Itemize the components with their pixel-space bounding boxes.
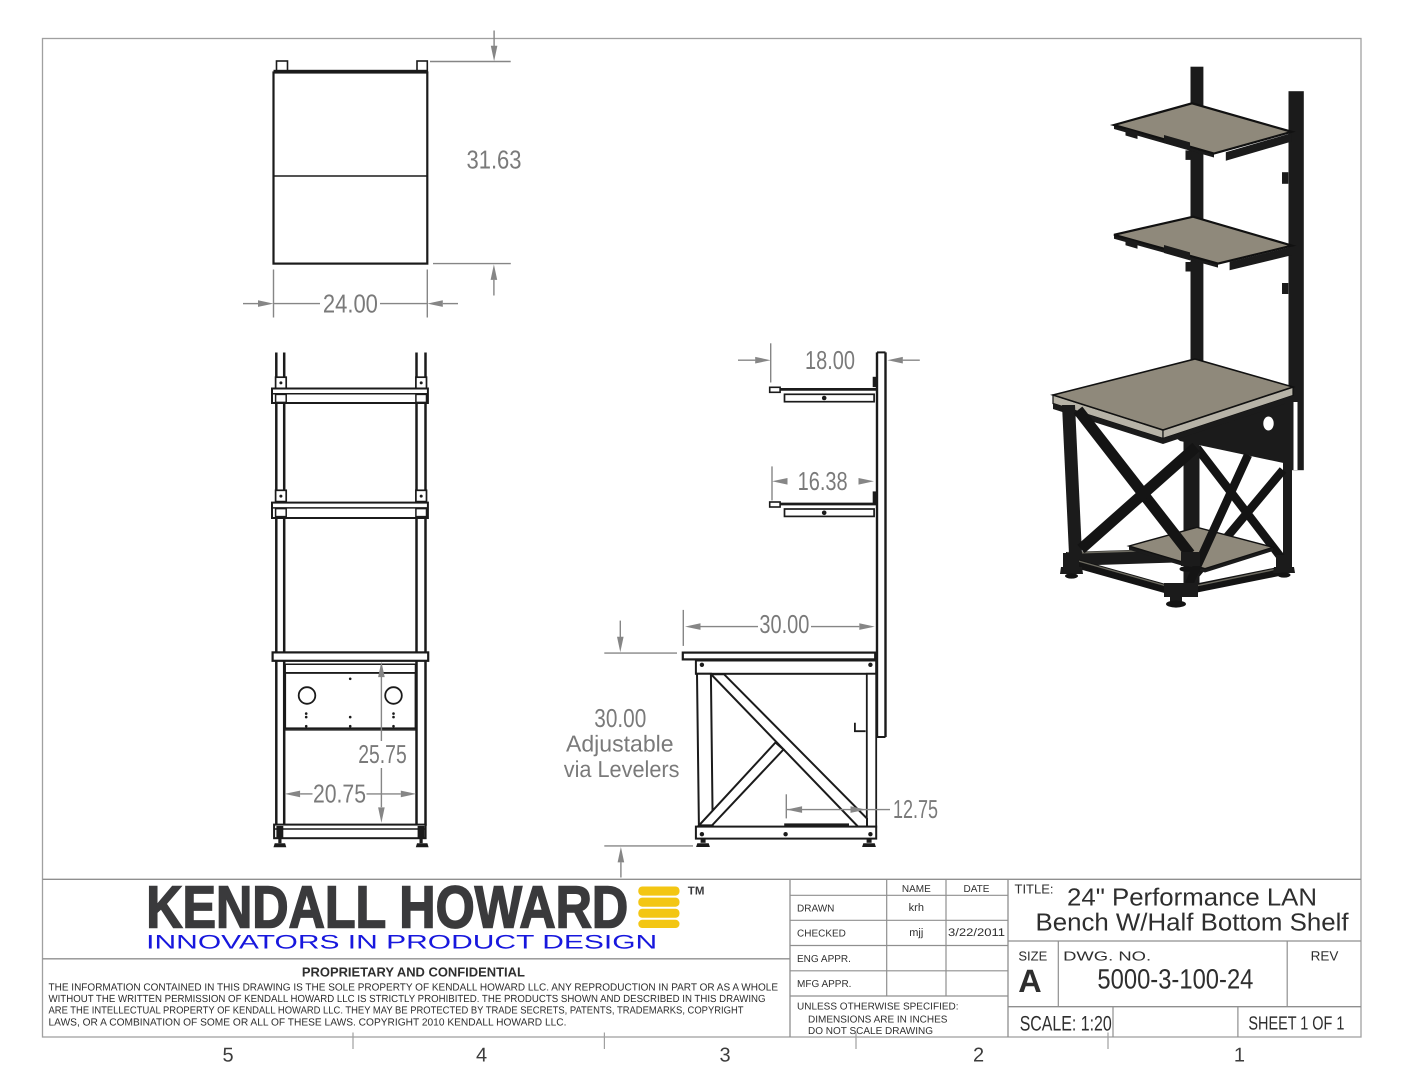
svg-text:25.75: 25.75 (358, 739, 407, 769)
svg-text:SHEET 1 OF 1: SHEET 1 OF 1 (1248, 1014, 1344, 1035)
svg-text:4: 4 (476, 1045, 487, 1067)
svg-text:TITLE:: TITLE: (1015, 882, 1054, 897)
svg-text:DRAWN: DRAWN (797, 904, 834, 915)
svg-text:SCALE: 1:20: SCALE: 1:20 (1020, 1012, 1112, 1035)
svg-text:THE INFORMATION CONTAINED IN T: THE INFORMATION CONTAINED IN THIS DRAWIN… (49, 983, 779, 994)
svg-text:DIMENSIONS ARE IN INCHES: DIMENSIONS ARE IN INCHES (808, 1015, 948, 1026)
svg-text:DO NOT SCALE DRAWING: DO NOT SCALE DRAWING (808, 1026, 933, 1037)
svg-text:3: 3 (719, 1045, 730, 1067)
svg-text:UNLESS OTHERWISE SPECIFIED:: UNLESS OTHERWISE SPECIFIED: (797, 1002, 959, 1013)
svg-text:18.00: 18.00 (805, 345, 855, 375)
svg-text:16.38: 16.38 (798, 466, 848, 496)
svg-text:DWG. NO.: DWG. NO. (1063, 949, 1151, 964)
svg-text:Bench W/Half Bottom Shelf: Bench W/Half Bottom Shelf (1036, 910, 1349, 937)
svg-text:30.00: 30.00 (759, 609, 809, 639)
svg-text:mjj: mjj (909, 927, 923, 939)
svg-text:LAWS, OR A COMBINATION OF SOME: LAWS, OR A COMBINATION OF SOME OR ALL OF… (49, 1017, 567, 1028)
svg-text:24.00: 24.00 (323, 288, 378, 318)
svg-text:DATE: DATE (964, 884, 990, 895)
svg-text:ENG APPR.: ENG APPR. (797, 954, 851, 965)
svg-text:5: 5 (222, 1045, 233, 1067)
svg-text:5000-3-100-24: 5000-3-100-24 (1097, 963, 1253, 994)
svg-text:krh: krh (909, 902, 924, 914)
svg-text:WITHOUT THE WRITTEN PERMISSION: WITHOUT THE WRITTEN PERMISSION OF KENDAL… (49, 994, 766, 1005)
svg-text:PROPRIETARY AND CONFIDENTIAL: PROPRIETARY AND CONFIDENTIAL (302, 964, 525, 979)
svg-text:via Levelers: via Levelers (564, 756, 680, 782)
svg-text:INNOVATORS IN PRODUCT DESIGN: INNOVATORS IN PRODUCT DESIGN (146, 931, 657, 953)
svg-text:ARE THE INTELLECTUAL PROPERTY: ARE THE INTELLECTUAL PROPERTY OF KENDALL… (49, 1006, 745, 1017)
svg-text:2: 2 (973, 1045, 984, 1067)
svg-text:Adjustable: Adjustable (566, 730, 674, 756)
svg-text:CHECKED: CHECKED (797, 929, 846, 940)
svg-text:1: 1 (1234, 1045, 1245, 1067)
svg-text:30.00: 30.00 (594, 703, 646, 733)
svg-text:12.75: 12.75 (893, 794, 938, 824)
svg-text:REV: REV (1311, 949, 1339, 964)
svg-text:31.63: 31.63 (467, 144, 522, 174)
svg-text:24" Performance LAN: 24" Performance LAN (1067, 885, 1317, 912)
svg-text:A: A (1018, 963, 1041, 999)
svg-text:TM: TM (688, 886, 705, 898)
svg-text:NAME: NAME (902, 884, 931, 895)
svg-text:3/22/2011: 3/22/2011 (948, 927, 1005, 939)
svg-text:MFG APPR.: MFG APPR. (797, 979, 851, 990)
svg-text:SIZE: SIZE (1018, 949, 1047, 964)
svg-text:20.75: 20.75 (313, 778, 366, 808)
